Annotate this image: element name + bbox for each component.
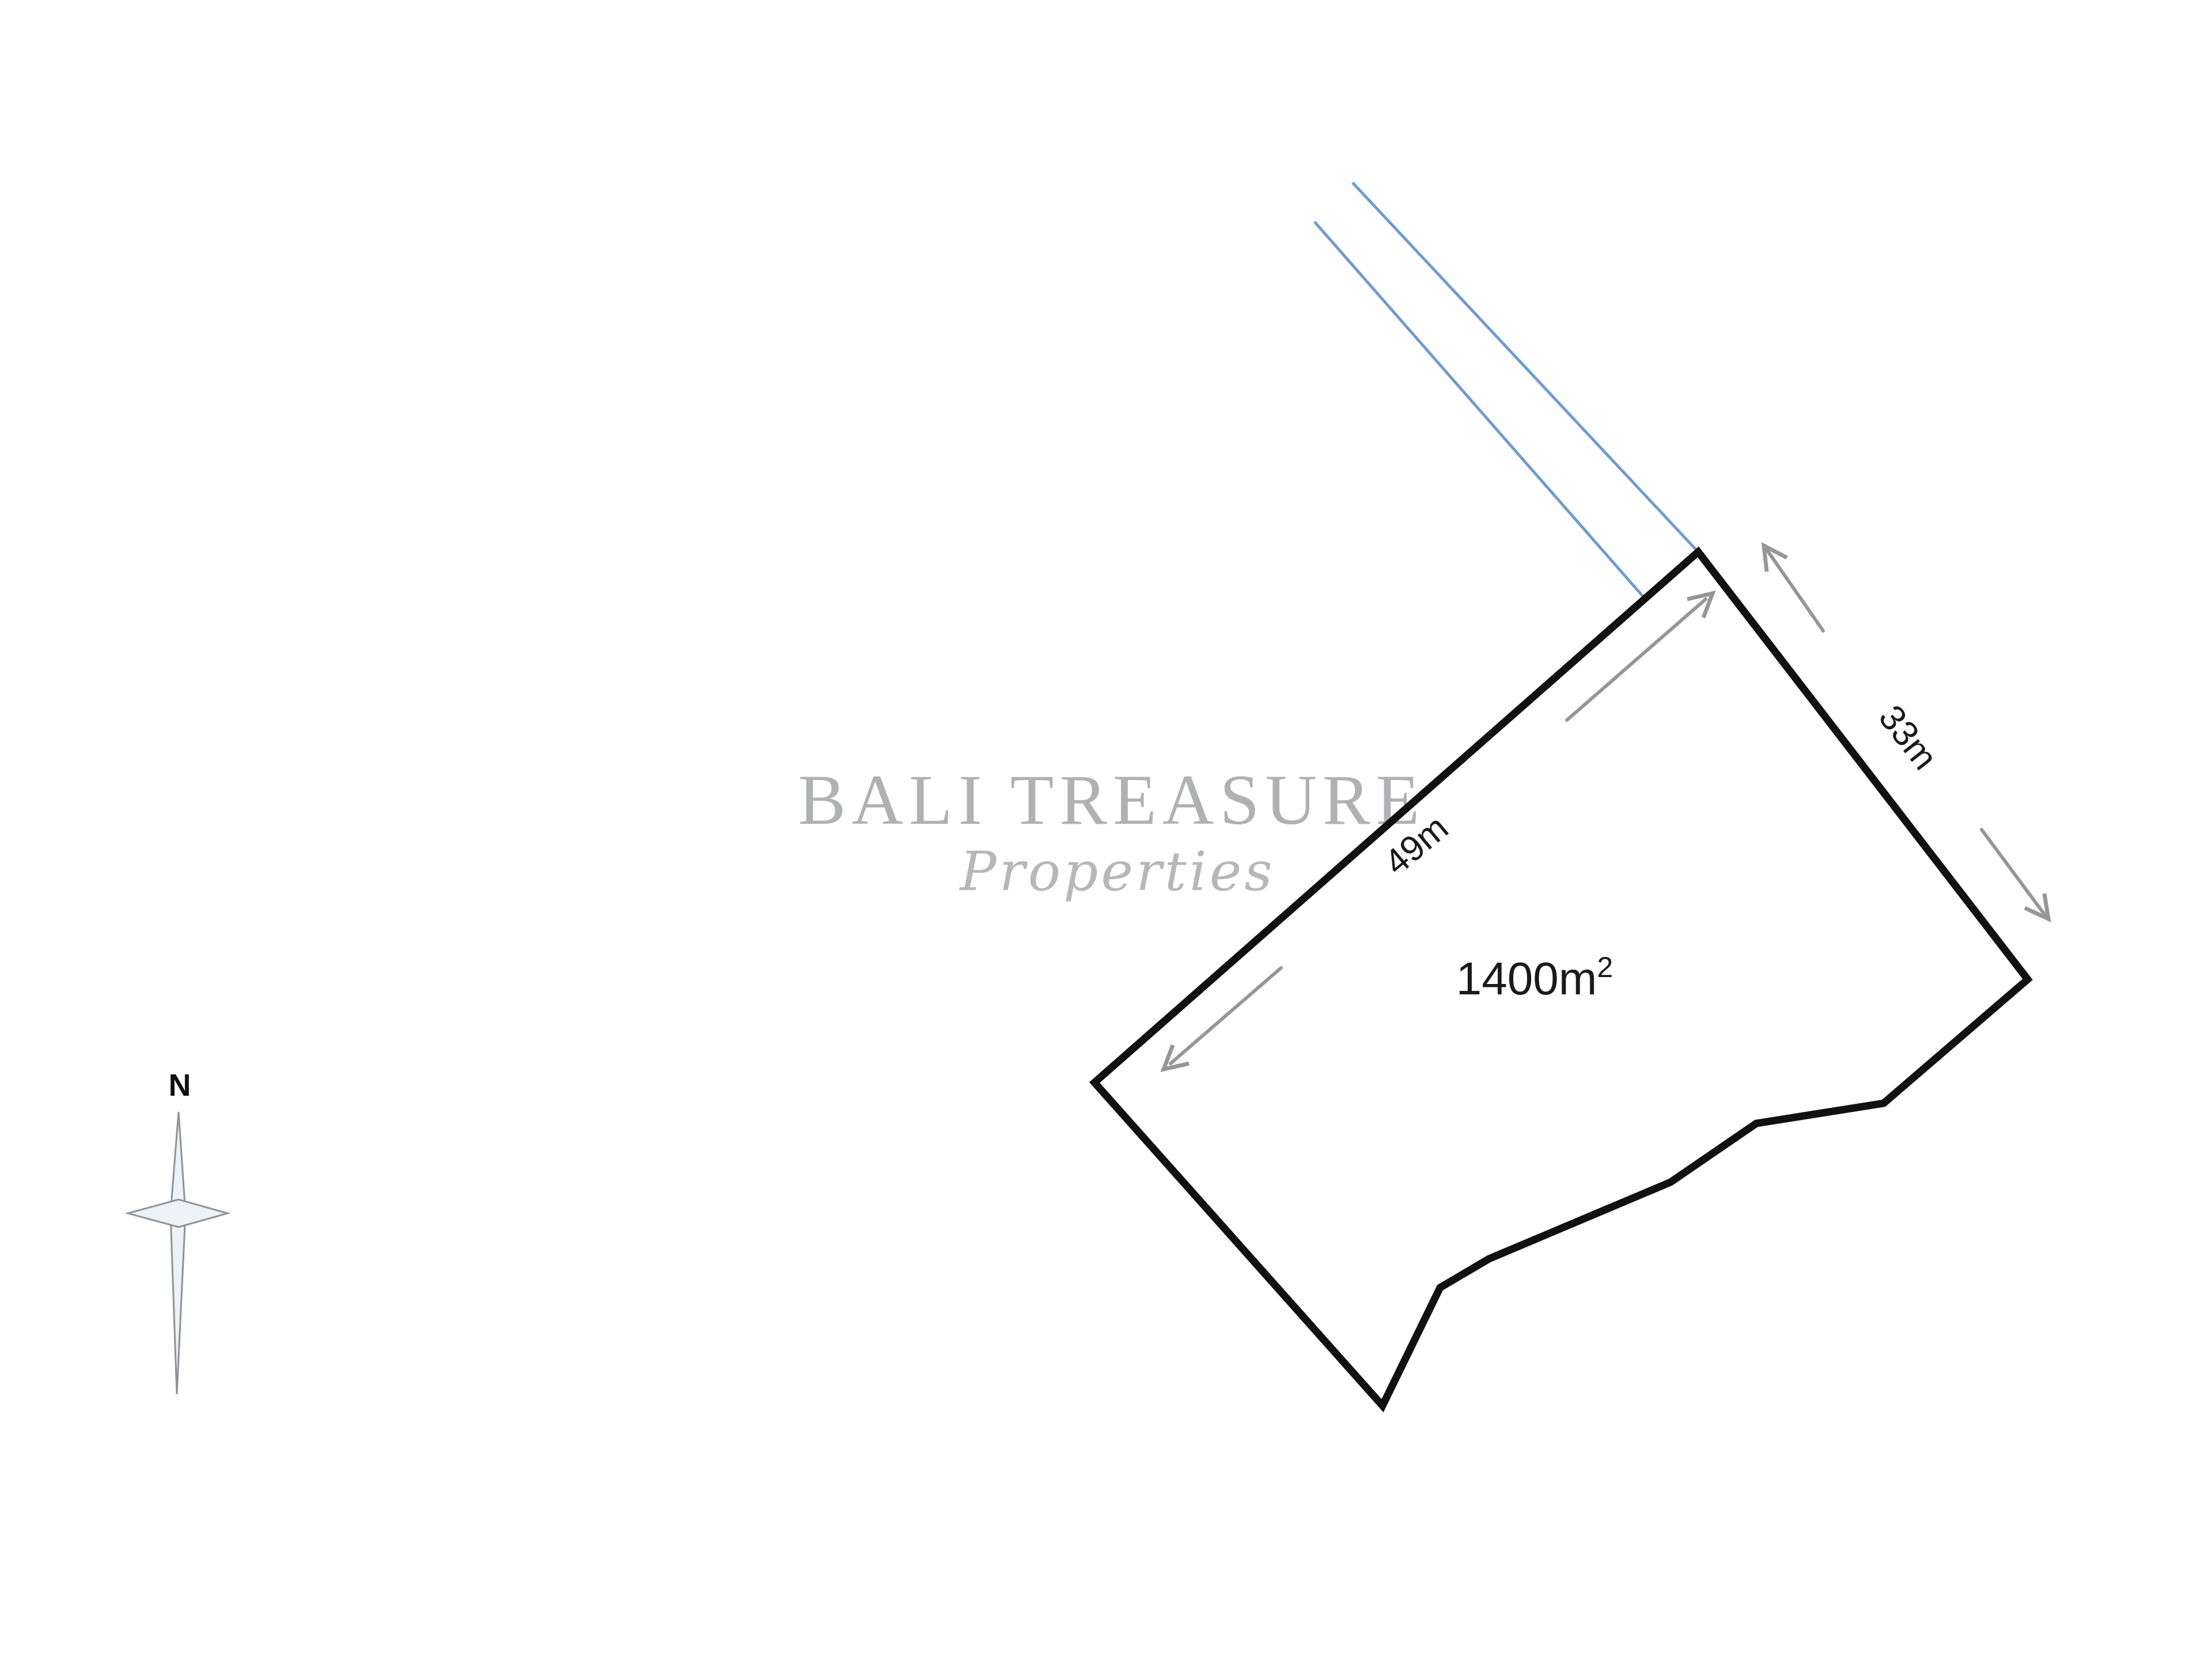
- dimension-49m-arrow-up-shaft: [1567, 599, 1706, 720]
- plot-area-superscript: 2: [1597, 951, 1613, 983]
- dimension-49m-arrow-down-shaft: [1171, 968, 1281, 1063]
- plot-area-label: 1400m2: [1456, 951, 1613, 1004]
- dimension-33m-arrow-up-head-icon: [1764, 546, 1787, 571]
- dimension-33m: 33m: [1764, 546, 2048, 919]
- compass-north-letter: N: [169, 1068, 191, 1103]
- dimension-33m-arrow-down-shaft: [1982, 830, 2044, 914]
- plot-area-value: 1400m: [1456, 953, 1597, 1004]
- compass-north-indicator: N: [128, 1068, 228, 1394]
- compass-star-vertical-icon: [171, 1112, 185, 1394]
- road-line-right: [1353, 183, 1698, 552]
- watermark-brand-text: BALI TREASURE: [798, 760, 1426, 839]
- access-road-lines: [1315, 183, 1698, 596]
- road-line-left: [1315, 222, 1643, 596]
- land-plot-plan: BALI TREASURE Properties 49m 33m 1400m2 …: [0, 0, 2212, 1654]
- dimension-33m-label: 33m: [1871, 698, 1945, 778]
- watermark: BALI TREASURE Properties: [798, 760, 1426, 903]
- dimension-33m-arrow-up-shaft: [1767, 550, 1823, 631]
- compass-star-horizontal-icon: [128, 1199, 228, 1227]
- watermark-script-text: Properties: [959, 841, 1275, 903]
